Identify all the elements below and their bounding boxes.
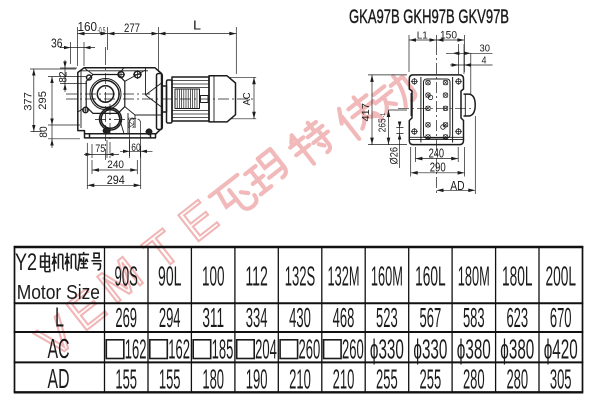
- svg-text:155: 155: [115, 364, 137, 395]
- svg-text:80: 80: [38, 126, 50, 137]
- svg-text:150: 150: [440, 29, 457, 41]
- svg-text:132M: 132M: [328, 260, 360, 291]
- svg-text:190: 190: [246, 364, 268, 395]
- svg-text:210: 210: [289, 364, 311, 395]
- svg-text:260: 260: [299, 334, 321, 365]
- svg-text:377: 377: [22, 92, 34, 111]
- svg-text:AC: AC: [242, 92, 253, 105]
- svg-text:280: 280: [506, 364, 528, 395]
- svg-text:160: 160: [78, 20, 98, 34]
- svg-text:523: 523: [376, 302, 398, 333]
- svg-text:160L: 160L: [415, 260, 446, 291]
- svg-text:Y2: Y2: [15, 249, 37, 276]
- svg-text:155: 155: [159, 364, 181, 395]
- svg-text:210: 210: [333, 364, 355, 395]
- svg-text:204: 204: [255, 334, 277, 365]
- svg-text:277: 277: [124, 23, 140, 35]
- svg-text:82: 82: [58, 71, 70, 82]
- svg-text:670: 670: [550, 302, 572, 333]
- svg-text:L: L: [193, 18, 201, 33]
- svg-text:294: 294: [159, 302, 181, 333]
- svg-text:-0.5: -0.5: [98, 25, 106, 35]
- svg-text:-1: -1: [380, 113, 387, 118]
- svg-text:112: 112: [245, 260, 268, 291]
- svg-text:255: 255: [376, 364, 398, 395]
- svg-text:132S: 132S: [285, 260, 316, 291]
- svg-text:ϕ380: ϕ380: [500, 334, 534, 365]
- svg-text:269: 269: [115, 302, 137, 333]
- svg-text:90S: 90S: [115, 260, 138, 291]
- svg-text:583: 583: [463, 302, 485, 333]
- svg-text:160M: 160M: [371, 260, 403, 291]
- svg-text:468: 468: [333, 302, 355, 333]
- svg-text:180: 180: [202, 364, 224, 395]
- svg-text:75: 75: [95, 143, 105, 155]
- svg-text:430: 430: [289, 302, 311, 333]
- svg-text:295: 295: [37, 91, 49, 110]
- svg-text:265: 265: [378, 118, 389, 132]
- svg-text:AD: AD: [450, 179, 464, 193]
- svg-text:200L: 200L: [545, 260, 576, 291]
- svg-text:311: 311: [202, 302, 224, 333]
- svg-text:180M: 180M: [458, 260, 490, 291]
- svg-text:280: 280: [463, 364, 485, 395]
- svg-text:60: 60: [131, 142, 140, 154]
- svg-text:305: 305: [550, 364, 572, 395]
- svg-text:4: 4: [482, 55, 487, 67]
- svg-text:ϕ420: ϕ420: [544, 334, 578, 365]
- svg-text:567: 567: [420, 302, 442, 333]
- svg-text:32.3: 32.3: [127, 117, 136, 128]
- svg-text:623: 623: [506, 302, 528, 333]
- svg-text:185: 185: [212, 334, 234, 365]
- svg-text:ϕ380: ϕ380: [457, 334, 491, 365]
- svg-text:AC: AC: [48, 333, 70, 364]
- svg-text:260: 260: [342, 334, 364, 365]
- svg-text:AD: AD: [48, 363, 70, 394]
- svg-text:L1: L1: [417, 29, 428, 41]
- svg-text:Ø26: Ø26: [388, 147, 400, 165]
- svg-text:294: 294: [107, 175, 126, 187]
- svg-text:180L: 180L: [502, 260, 533, 291]
- svg-text:255: 255: [420, 364, 442, 395]
- svg-text:162: 162: [168, 334, 190, 365]
- svg-text:90L: 90L: [158, 260, 181, 291]
- svg-text:L: L: [55, 302, 64, 333]
- svg-text:240: 240: [429, 146, 445, 160]
- svg-text:417: 417: [361, 103, 372, 122]
- svg-text:30: 30: [480, 42, 491, 54]
- svg-text:36: 36: [51, 37, 63, 51]
- svg-text:ϕ330: ϕ330: [370, 334, 404, 365]
- svg-text:GKA97B GKH97B GKV97B: GKA97B GKH97B GKV97B: [349, 7, 509, 28]
- svg-text:ϕ330: ϕ330: [413, 334, 447, 365]
- svg-text:240: 240: [107, 159, 124, 171]
- svg-text:162: 162: [125, 334, 147, 365]
- svg-text:290: 290: [430, 160, 446, 174]
- svg-text:334: 334: [246, 302, 268, 333]
- svg-text:100: 100: [202, 260, 225, 291]
